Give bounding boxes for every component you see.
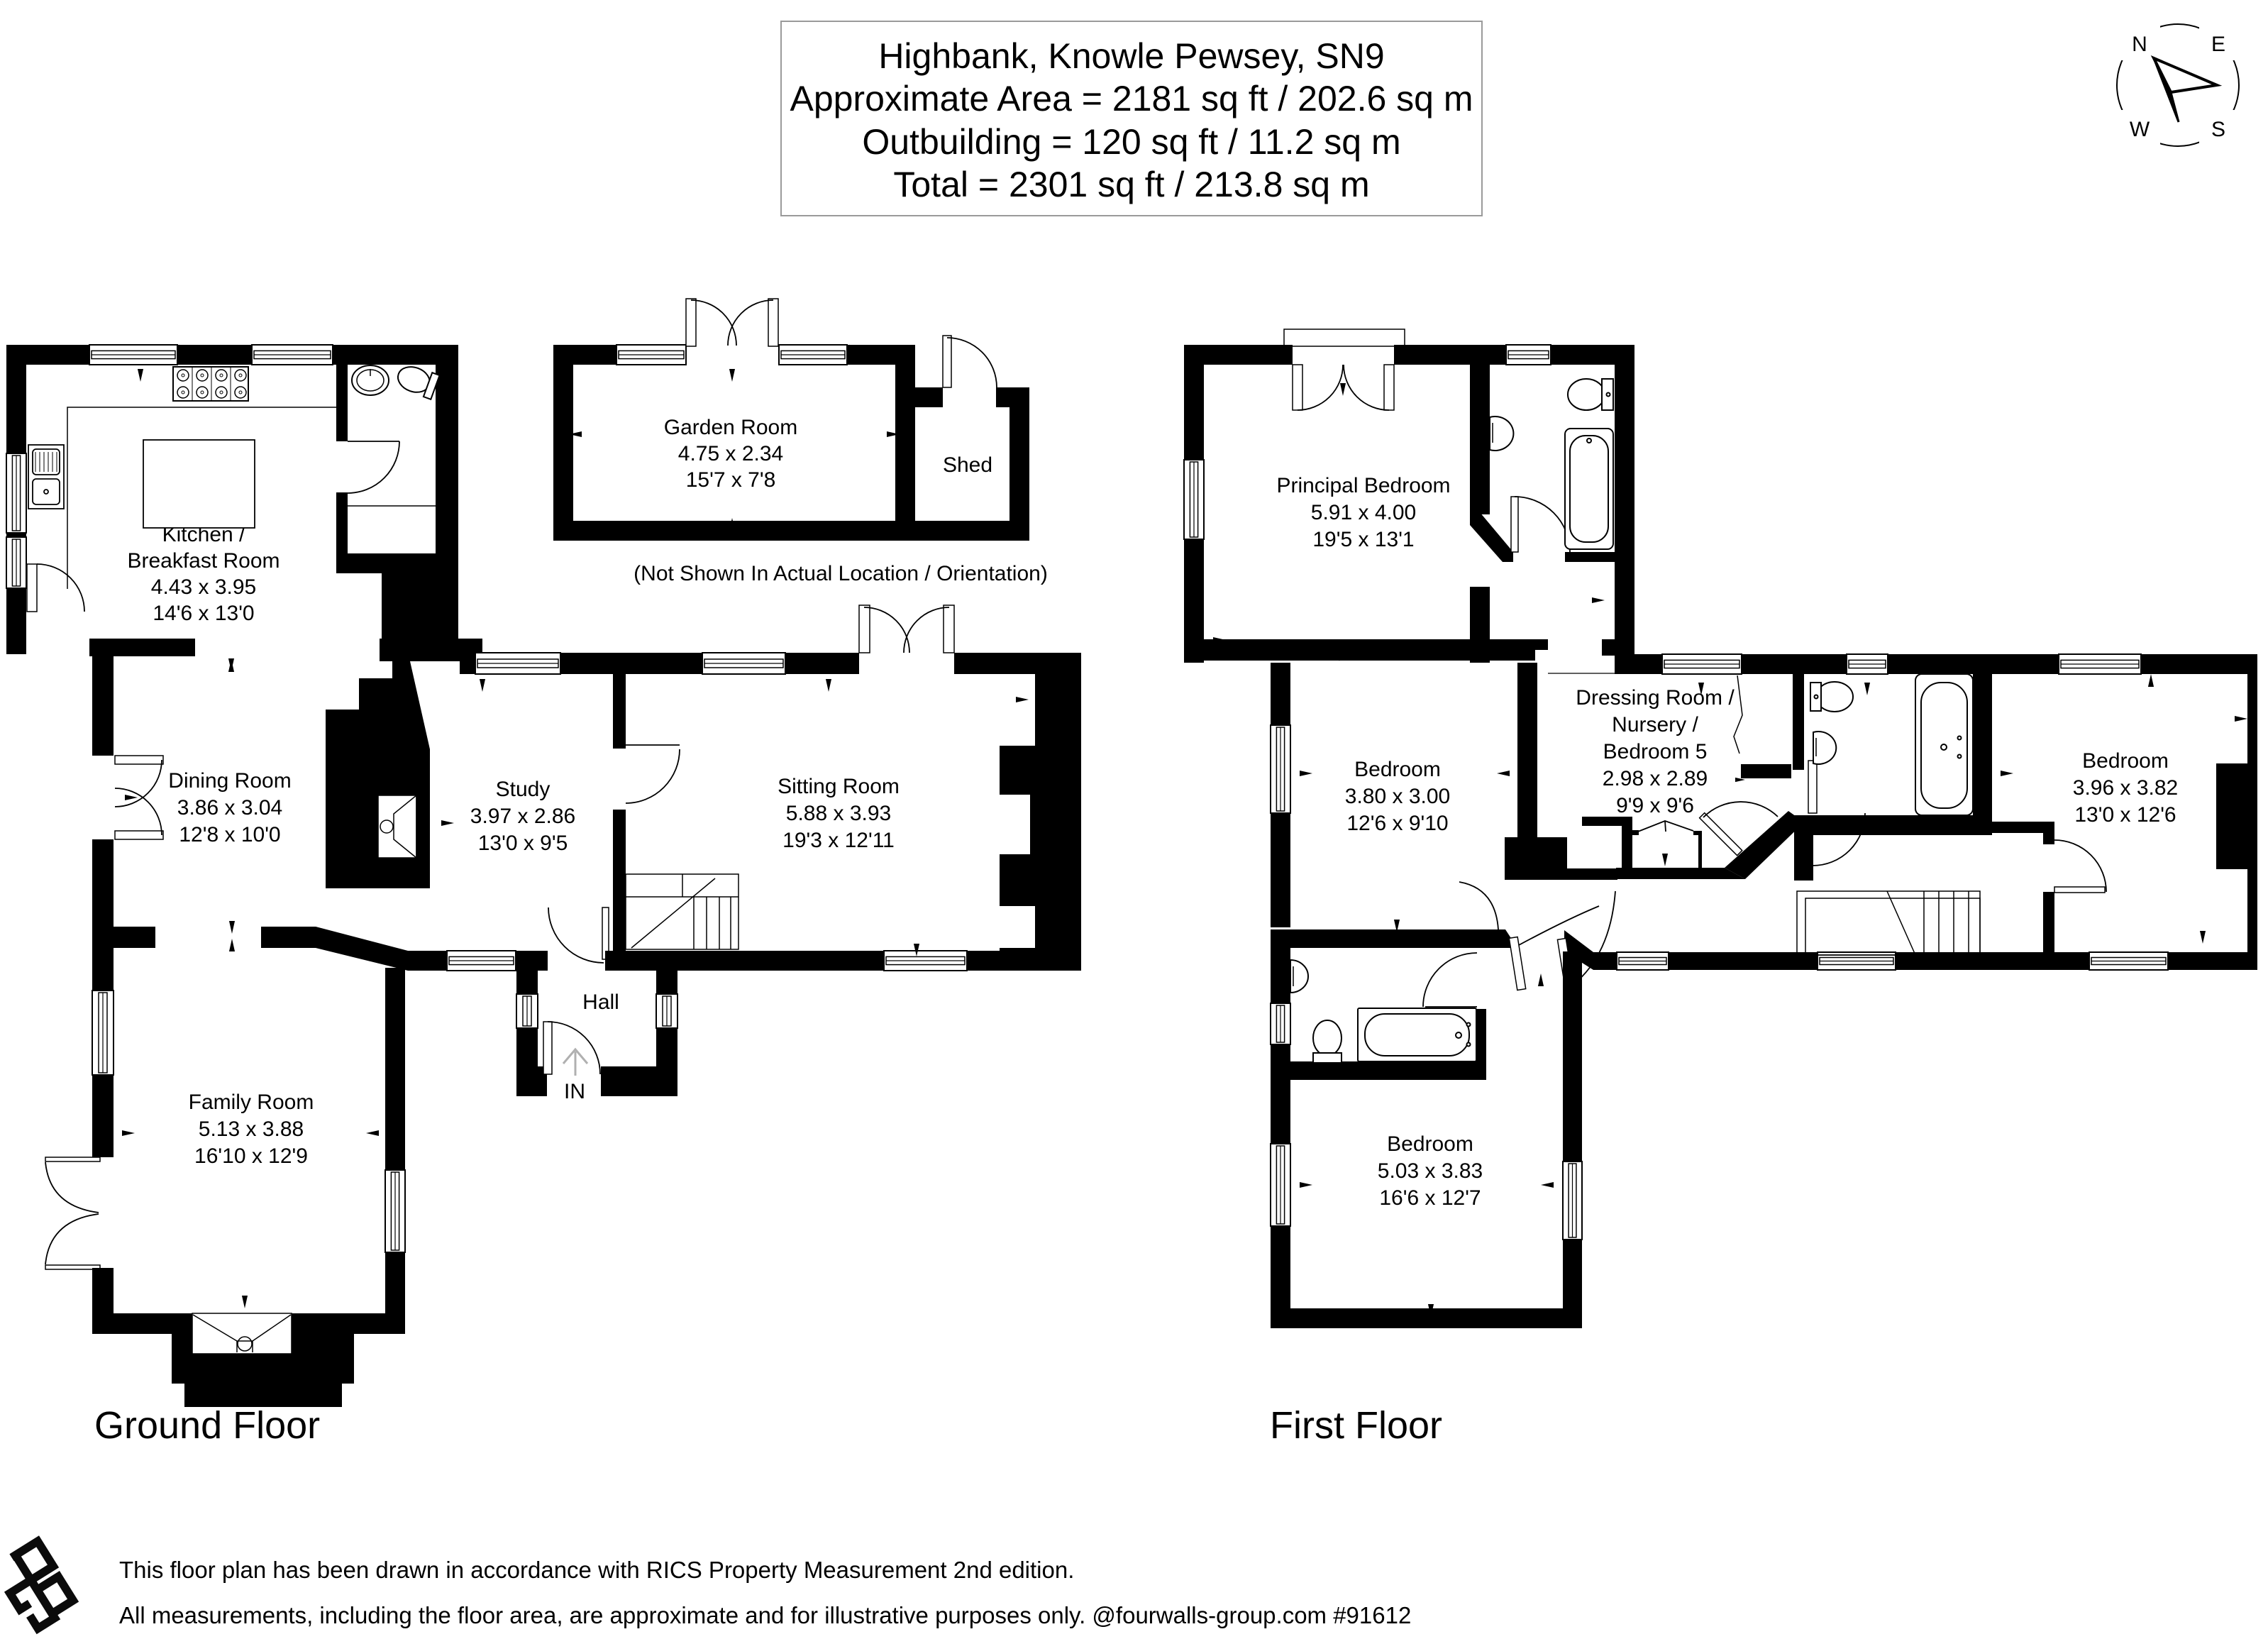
svg-text:3.86 x 3.04: 3.86 x 3.04	[177, 796, 282, 819]
svg-text:Garden Room: Garden Room	[664, 416, 797, 439]
svg-text:13'0 x 9'5: 13'0 x 9'5	[478, 832, 568, 855]
svg-text:W: W	[2130, 118, 2150, 141]
svg-text:3.97 x 2.86: 3.97 x 2.86	[470, 805, 575, 828]
svg-text:5.91 x 4.00: 5.91 x 4.00	[1311, 501, 1416, 524]
svg-text:Bedroom 5: Bedroom 5	[1603, 740, 1708, 763]
svg-text:Highbank, Knowle Pewsey, SN9: Highbank, Knowle Pewsey, SN9	[878, 36, 1384, 76]
svg-text:Principal Bedroom: Principal Bedroom	[1276, 474, 1450, 497]
svg-text:5.13 x 3.88: 5.13 x 3.88	[199, 1117, 304, 1141]
svg-text:Nursery /: Nursery /	[1612, 713, 1698, 736]
svg-text:16'6 x 12'7: 16'6 x 12'7	[1379, 1186, 1481, 1210]
svg-text:S: S	[2211, 118, 2225, 141]
svg-text:5.03 x 3.83: 5.03 x 3.83	[1378, 1159, 1483, 1183]
svg-text:2.98 x 2.89: 2.98 x 2.89	[1603, 767, 1708, 790]
svg-text:Approximate Area = 2181 sq ft: Approximate Area = 2181 sq ft / 202.6 sq…	[790, 79, 1473, 118]
svg-text:4.43 x 3.95: 4.43 x 3.95	[151, 575, 256, 599]
svg-text:Bedroom: Bedroom	[2082, 749, 2169, 773]
svg-text:3.96 x 3.82: 3.96 x 3.82	[2073, 776, 2178, 800]
svg-text:Total = 2301 sq ft / 213.8 sq: Total = 2301 sq ft / 213.8 sq m	[893, 165, 1369, 204]
svg-text:(Not Shown In Actual Location: (Not Shown In Actual Location / Orientat…	[634, 562, 1048, 585]
svg-text:First Floor: First Floor	[1270, 1404, 1442, 1447]
svg-text:14'6 x 13'0: 14'6 x 13'0	[153, 602, 254, 625]
svg-text:16'10 x 12'9: 16'10 x 12'9	[194, 1144, 308, 1168]
svg-text:E: E	[2211, 33, 2225, 56]
svg-text:19'5 x 13'1: 19'5 x 13'1	[1312, 528, 1414, 551]
svg-text:Sitting Room: Sitting Room	[778, 775, 900, 798]
svg-text:Study: Study	[496, 778, 551, 801]
svg-text:3.80 x 3.00: 3.80 x 3.00	[1345, 785, 1450, 808]
svg-text:Dressing Room /: Dressing Room /	[1576, 686, 1735, 710]
svg-text:9'9 x 9'6: 9'9 x 9'6	[1616, 794, 1694, 817]
svg-text:All measurements, including th: All measurements, including the floor ar…	[119, 1602, 1411, 1628]
svg-text:Hall: Hall	[582, 990, 619, 1014]
svg-text:5.88 x 3.93: 5.88 x 3.93	[786, 802, 891, 825]
svg-text:19'3 x 12'11: 19'3 x 12'11	[782, 829, 895, 852]
svg-text:Dining Room: Dining Room	[168, 769, 291, 793]
svg-text:N: N	[2132, 33, 2147, 56]
svg-text:This floor plan has been drawn: This floor plan has been drawn in accord…	[119, 1557, 1074, 1583]
svg-text:Bedroom: Bedroom	[1387, 1132, 1473, 1156]
svg-text:Breakfast Room: Breakfast Room	[127, 549, 280, 573]
svg-text:4.75 x 2.34: 4.75 x 2.34	[678, 442, 783, 465]
svg-text:Family Room: Family Room	[189, 1091, 314, 1114]
svg-text:Outbuilding = 120 sq ft / 11.2: Outbuilding = 120 sq ft / 11.2 sq m	[862, 122, 1400, 162]
svg-text:13'0 x 12'6: 13'0 x 12'6	[2074, 803, 2176, 827]
svg-text:Shed: Shed	[943, 453, 992, 477]
svg-text:Bedroom: Bedroom	[1354, 758, 1441, 781]
svg-text:15'7 x 7'8: 15'7 x 7'8	[686, 468, 776, 492]
svg-text:IN: IN	[564, 1080, 585, 1103]
svg-text:Ground Floor: Ground Floor	[94, 1404, 320, 1447]
svg-text:12'6 x 9'10: 12'6 x 9'10	[1346, 812, 1448, 835]
svg-text:12'8 x 10'0: 12'8 x 10'0	[179, 823, 280, 846]
